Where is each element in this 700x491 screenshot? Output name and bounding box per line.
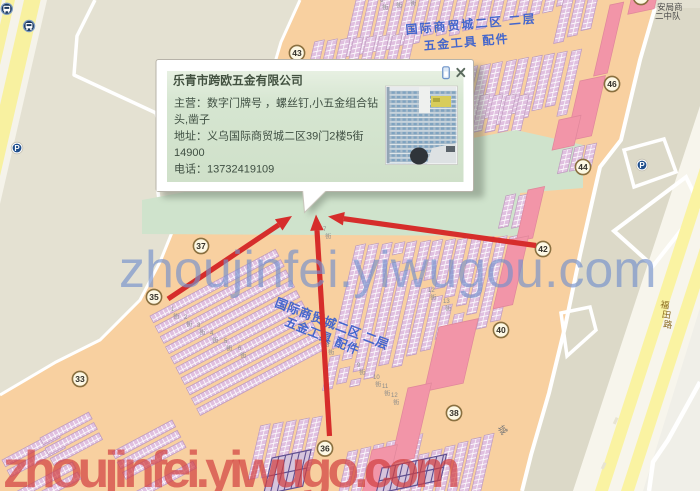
- svg-text:38: 38: [449, 408, 459, 418]
- svg-text:街: 街: [359, 368, 365, 376]
- svg-text:地址：义乌国际商贸城二区39门2楼5街: 地址：义乌国际商贸城二区39门2楼5街: [174, 129, 363, 143]
- svg-text:P: P: [14, 144, 20, 153]
- svg-text:12: 12: [391, 393, 398, 399]
- svg-text:40: 40: [496, 325, 506, 335]
- svg-text:街: 街: [375, 380, 381, 388]
- svg-text:街: 街: [384, 389, 390, 397]
- svg-text:街: 街: [173, 312, 179, 320]
- svg-text:头,凿子: 头,凿子: [174, 113, 210, 126]
- svg-text:街: 街: [396, 1, 402, 9]
- svg-text:46: 46: [607, 79, 617, 89]
- svg-text:街: 街: [445, 304, 451, 312]
- svg-text:zhoujinfei.yiwugou.com: zhoujinfei.yiwugou.com: [119, 241, 657, 299]
- svg-text:33: 33: [75, 374, 85, 384]
- svg-text:zhoujinfei.yiwugo.com: zhoujinfei.yiwugo.com: [3, 441, 458, 491]
- svg-text:14900: 14900: [174, 147, 205, 159]
- svg-text:街: 街: [410, 0, 416, 7]
- svg-text:街: 街: [325, 232, 331, 240]
- svg-text:10: 10: [373, 375, 380, 381]
- svg-text:街: 街: [240, 351, 246, 359]
- svg-text:街: 街: [199, 328, 205, 336]
- svg-text:P: P: [639, 161, 645, 170]
- svg-text:街: 街: [226, 344, 232, 352]
- svg-text:电话：13732419109: 电话：13732419109: [174, 163, 274, 176]
- svg-text:街: 街: [382, 3, 388, 11]
- svg-text:街: 街: [186, 320, 192, 328]
- svg-text:11: 11: [382, 384, 389, 390]
- svg-text:主营：数字门牌号 ，螺丝钉,小五金组合钻: 主营：数字门牌号 ，螺丝钉,小五金组合钻: [174, 96, 378, 110]
- svg-text:路: 路: [662, 318, 673, 330]
- svg-text:街: 街: [212, 336, 218, 344]
- svg-text:43: 43: [292, 48, 302, 58]
- svg-text:44: 44: [578, 162, 588, 172]
- svg-text:乐青市跨欧五金有限公司: 乐青市跨欧五金有限公司: [173, 74, 303, 88]
- svg-text:13: 13: [443, 299, 450, 305]
- svg-text:街: 街: [393, 398, 399, 406]
- svg-text:街: 街: [328, 348, 334, 356]
- svg-text:二中队: 二中队: [655, 11, 681, 21]
- svg-text:48: 48: [636, 0, 646, 2]
